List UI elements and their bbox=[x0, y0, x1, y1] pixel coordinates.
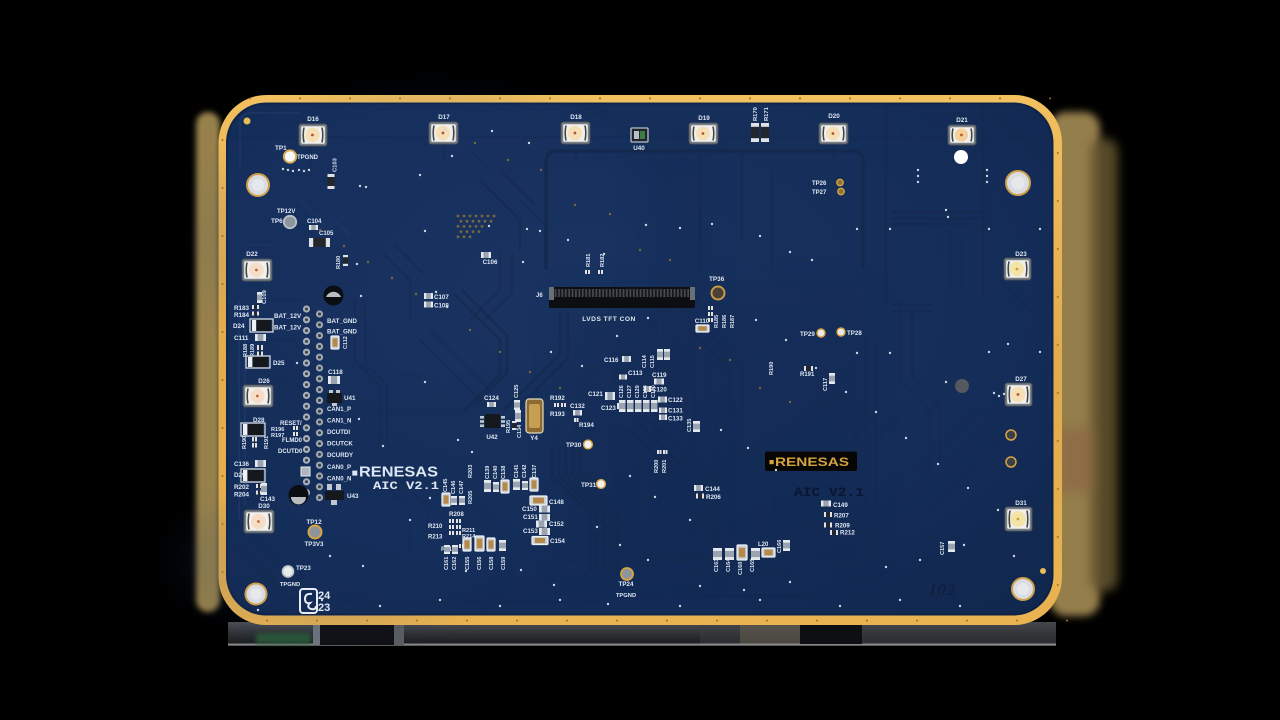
svg-text:U41: U41 bbox=[344, 395, 356, 402]
svg-text:BAT_GND: BAT_GND bbox=[327, 329, 357, 336]
svg-text:C156: C156 bbox=[477, 557, 483, 570]
svg-text:TP12V: TP12V bbox=[277, 209, 295, 215]
svg-text:R190: R190 bbox=[242, 436, 248, 449]
svg-text:C148: C148 bbox=[549, 499, 564, 506]
svg-text:R180: R180 bbox=[336, 256, 342, 269]
svg-text:C152: C152 bbox=[549, 521, 564, 528]
svg-text:C132: C132 bbox=[570, 403, 585, 410]
svg-text:DCUTDI: DCUTDI bbox=[327, 429, 350, 436]
svg-text:C120: C120 bbox=[652, 387, 667, 394]
svg-text:D31: D31 bbox=[1015, 500, 1027, 507]
svg-text:TP24: TP24 bbox=[619, 581, 634, 588]
svg-text:R204: R204 bbox=[234, 492, 250, 499]
svg-text:TP30: TP30 bbox=[566, 442, 582, 449]
svg-text:CAN0_N: CAN0_N bbox=[327, 476, 351, 483]
svg-text:C155: C155 bbox=[465, 557, 471, 570]
svg-text:D19: D19 bbox=[698, 115, 710, 122]
svg-text:R202: R202 bbox=[234, 484, 250, 491]
svg-text:C117: C117 bbox=[823, 378, 829, 391]
svg-text:R184: R184 bbox=[234, 312, 250, 319]
svg-text:FLMD0: FLMD0 bbox=[282, 438, 303, 444]
svg-text:CAN1_N: CAN1_N bbox=[327, 418, 351, 425]
svg-text:TP31: TP31 bbox=[581, 482, 597, 489]
svg-text:TP26: TP26 bbox=[812, 181, 827, 187]
svg-text:TP23: TP23 bbox=[296, 565, 311, 572]
svg-text:R183: R183 bbox=[234, 305, 250, 312]
svg-text:J6: J6 bbox=[536, 293, 543, 299]
svg-text:TPGND: TPGND bbox=[297, 155, 319, 161]
svg-text:U42: U42 bbox=[486, 434, 498, 441]
svg-text:C134: C134 bbox=[517, 424, 523, 438]
svg-text:TP36: TP36 bbox=[709, 276, 725, 283]
svg-text:R195: R195 bbox=[506, 420, 512, 433]
svg-text:C166: C166 bbox=[777, 540, 783, 553]
svg-text:24: 24 bbox=[318, 590, 331, 602]
svg-text:C109: C109 bbox=[262, 289, 268, 304]
svg-text:R203: R203 bbox=[468, 465, 474, 478]
svg-text:23: 23 bbox=[318, 602, 330, 614]
svg-text:R205: R205 bbox=[468, 491, 474, 504]
svg-text:C143: C143 bbox=[260, 496, 276, 503]
svg-text:C164: C164 bbox=[726, 558, 732, 572]
svg-text:D21: D21 bbox=[956, 117, 968, 124]
svg-text:C145: C145 bbox=[443, 479, 449, 492]
svg-text:C104: C104 bbox=[307, 219, 322, 225]
svg-text:C139: C139 bbox=[485, 466, 491, 479]
svg-text:C110: C110 bbox=[695, 318, 710, 325]
svg-text:C157: C157 bbox=[940, 542, 946, 555]
svg-text:C147: C147 bbox=[459, 481, 465, 494]
svg-text:TP6: TP6 bbox=[271, 218, 283, 225]
svg-text:C122: C122 bbox=[668, 397, 683, 404]
svg-text:TPGND: TPGND bbox=[280, 582, 300, 588]
svg-text:D24: D24 bbox=[233, 323, 245, 330]
svg-text:U43: U43 bbox=[347, 493, 359, 500]
svg-text:D22: D22 bbox=[246, 251, 258, 258]
svg-text:TP29: TP29 bbox=[800, 331, 815, 338]
svg-text:CAN0_P: CAN0_P bbox=[327, 464, 351, 471]
svg-text:DCUTD0: DCUTD0 bbox=[278, 449, 303, 455]
svg-text:CAN1_P: CAN1_P bbox=[327, 406, 351, 413]
svg-text:TP28: TP28 bbox=[847, 330, 862, 337]
svg-text:C119: C119 bbox=[652, 372, 667, 379]
svg-text:C160: C160 bbox=[738, 562, 744, 575]
svg-text:BAT_12V: BAT_12V bbox=[274, 313, 302, 320]
svg-text:C153: C153 bbox=[523, 528, 538, 535]
svg-text:D20: D20 bbox=[828, 113, 840, 120]
svg-text:D27: D27 bbox=[1015, 376, 1027, 383]
svg-text:C124: C124 bbox=[484, 395, 499, 402]
svg-text:TPGND: TPGND bbox=[616, 593, 636, 599]
svg-text:TP3V3: TP3V3 bbox=[305, 541, 324, 548]
svg-text:C151: C151 bbox=[523, 514, 538, 521]
svg-text:RENESAS: RENESAS bbox=[359, 464, 438, 481]
svg-text:C137: C137 bbox=[532, 465, 538, 478]
svg-text:C135: C135 bbox=[687, 419, 693, 432]
svg-text:C107: C107 bbox=[434, 294, 449, 301]
svg-text:R187: R187 bbox=[730, 315, 736, 328]
svg-text:C150: C150 bbox=[522, 506, 537, 513]
svg-text:C114: C114 bbox=[642, 354, 648, 368]
svg-text:D16: D16 bbox=[307, 116, 319, 123]
svg-text:R189: R189 bbox=[250, 344, 256, 357]
svg-text:C165: C165 bbox=[750, 559, 756, 572]
svg-text:R209: R209 bbox=[835, 523, 850, 530]
svg-text:C111: C111 bbox=[234, 335, 249, 342]
svg-text:R193: R193 bbox=[550, 411, 565, 418]
svg-text:D25: D25 bbox=[273, 360, 285, 367]
svg-text:R185: R185 bbox=[714, 315, 720, 328]
svg-text:C105: C105 bbox=[319, 231, 334, 237]
svg-text:C154: C154 bbox=[550, 538, 565, 545]
svg-text:R207: R207 bbox=[834, 513, 849, 520]
svg-text:C125: C125 bbox=[514, 385, 520, 398]
svg-text:C140: C140 bbox=[493, 466, 499, 479]
svg-text:U40: U40 bbox=[633, 145, 645, 152]
svg-text:D30: D30 bbox=[258, 503, 270, 510]
svg-text:D23: D23 bbox=[1015, 251, 1027, 258]
svg-text:C121: C121 bbox=[588, 391, 603, 398]
svg-text:BAT_GND: BAT_GND bbox=[327, 318, 357, 325]
svg-text:DCURDY: DCURDY bbox=[327, 452, 353, 459]
svg-text:R171: R171 bbox=[764, 106, 770, 121]
svg-text:Y4: Y4 bbox=[530, 435, 538, 442]
svg-text:C103: C103 bbox=[333, 157, 339, 172]
svg-text:R201: R201 bbox=[662, 460, 668, 473]
svg-text:R191: R191 bbox=[264, 436, 270, 449]
svg-text:C123: C123 bbox=[601, 405, 616, 412]
svg-text:LVDS TFT CON: LVDS TFT CON bbox=[582, 316, 636, 323]
svg-text:C141: C141 bbox=[514, 465, 520, 478]
svg-text:C149: C149 bbox=[833, 502, 848, 509]
svg-text:C144: C144 bbox=[705, 486, 720, 493]
svg-text:C138: C138 bbox=[501, 466, 507, 479]
svg-text:R191: R191 bbox=[800, 372, 815, 378]
svg-text:D17: D17 bbox=[438, 114, 450, 121]
svg-text:TP27: TP27 bbox=[812, 190, 827, 196]
svg-text:R190: R190 bbox=[769, 362, 775, 375]
svg-text:C146: C146 bbox=[451, 481, 457, 494]
svg-text:C159: C159 bbox=[501, 557, 507, 570]
svg-text:R212: R212 bbox=[840, 530, 855, 537]
svg-text:I02: I02 bbox=[929, 582, 957, 599]
svg-text:D26: D26 bbox=[258, 378, 270, 385]
svg-text:C126: C126 bbox=[619, 385, 625, 398]
svg-text:R206: R206 bbox=[706, 494, 721, 501]
svg-text:C106: C106 bbox=[483, 259, 498, 266]
svg-text:C142: C142 bbox=[522, 465, 528, 478]
svg-text:C113: C113 bbox=[628, 370, 643, 377]
svg-text:RENESAS: RENESAS bbox=[775, 455, 849, 469]
svg-text:C129: C129 bbox=[635, 385, 641, 398]
svg-text:R200: R200 bbox=[654, 460, 660, 473]
svg-text:D18: D18 bbox=[570, 114, 582, 121]
svg-text:R181: R181 bbox=[586, 254, 592, 267]
svg-text:BAT_12V: BAT_12V bbox=[274, 325, 302, 332]
svg-text:DCUTCK: DCUTCK bbox=[327, 441, 353, 448]
svg-text:R188: R188 bbox=[243, 344, 249, 357]
svg-text:AIC V2.1: AIC V2.1 bbox=[794, 485, 864, 500]
svg-text:C161: C161 bbox=[444, 557, 450, 570]
svg-text:R182: R182 bbox=[600, 254, 606, 267]
svg-text:TP1: TP1 bbox=[275, 145, 287, 152]
svg-text:C131: C131 bbox=[668, 408, 683, 415]
svg-text:L20: L20 bbox=[758, 542, 769, 548]
svg-text:C116: C116 bbox=[604, 357, 619, 364]
svg-text:C163: C163 bbox=[714, 559, 720, 572]
svg-text:R213: R213 bbox=[428, 535, 443, 541]
svg-text:C127: C127 bbox=[627, 385, 633, 398]
svg-text:C162: C162 bbox=[452, 557, 458, 570]
svg-text:R192: R192 bbox=[550, 395, 565, 402]
svg-text:C115: C115 bbox=[650, 355, 656, 368]
svg-text:AIC V2.1: AIC V2.1 bbox=[373, 481, 439, 493]
svg-text:R194: R194 bbox=[579, 422, 594, 429]
svg-text:C136: C136 bbox=[234, 461, 250, 468]
svg-text:C133: C133 bbox=[668, 416, 683, 423]
svg-text:C112: C112 bbox=[343, 336, 349, 349]
svg-text:C118: C118 bbox=[328, 369, 343, 376]
svg-text:R186: R186 bbox=[722, 315, 728, 328]
svg-text:R170: R170 bbox=[753, 107, 759, 121]
svg-text:R210: R210 bbox=[428, 524, 443, 530]
svg-text:C158: C158 bbox=[489, 557, 495, 570]
svg-text:R208: R208 bbox=[449, 511, 464, 518]
